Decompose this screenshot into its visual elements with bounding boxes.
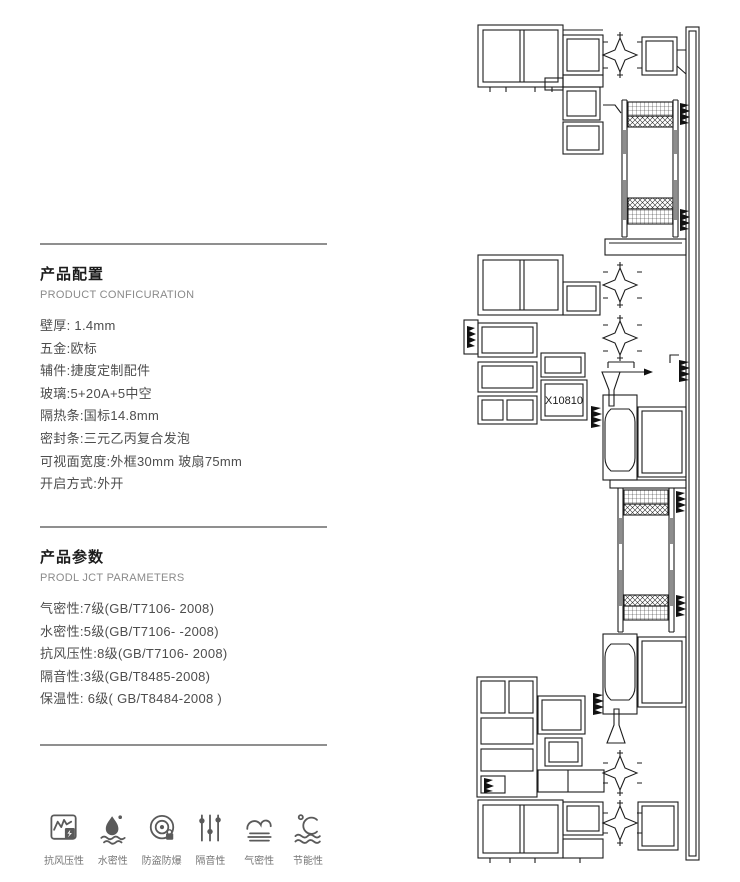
air-tightness-icon (241, 810, 277, 846)
config-list: 壁厚: 1.4mm 五金:欧标 辅件:捷度定制配件 玻璃:5+20A+5中空 隔… (40, 315, 340, 496)
performance-feature-row: 抗风压性 水密性 防盗防爆 (40, 810, 332, 867)
feature-label: 隔音性 (195, 852, 225, 867)
params-item: 保温性: 6级( GB/T8484-2008 ) (40, 688, 340, 711)
energy-saving-icon (290, 810, 326, 846)
sound-insulation-icon (192, 810, 228, 846)
product-parameters-section: 产品参数 PRODL JCT PARAMETERS 气密性:7级(GB/T710… (40, 546, 340, 711)
config-title: 产品配置 (40, 263, 340, 284)
params-title: 产品参数 (40, 546, 340, 567)
divider-bottom (40, 744, 327, 746)
labeled-profile: X10810 (541, 380, 587, 420)
drainage-arrow (644, 369, 653, 376)
head-frame (478, 25, 686, 154)
params-subtitle: PRODL JCT PARAMETERS (40, 572, 340, 584)
profile-code-label: X10810 (545, 395, 583, 407)
config-item: 壁厚: 1.4mm (40, 315, 340, 338)
config-subtitle: PRODUCT CONFICURATION (40, 289, 340, 301)
params-item: 隔音性:3级(GB/T8485-2008) (40, 666, 340, 689)
feature-label: 节能性 (293, 852, 323, 867)
water-tightness-icon (95, 810, 131, 846)
glass-unit-bottom (618, 488, 686, 632)
config-item: 玻璃:5+20A+5中空 (40, 383, 340, 406)
params-item: 抗风压性:8级(GB/T7106- 2008) (40, 643, 340, 666)
divider-middle (40, 526, 327, 528)
config-item: 密封条:三元乙丙复合发泡 (40, 428, 340, 451)
profile-cross-section-drawing: X10810 (460, 10, 740, 870)
feature-label: 防盗防爆 (142, 852, 182, 867)
config-item: 开启方式:外开 (40, 473, 340, 496)
feature-label: 气密性 (244, 852, 274, 867)
glass-unit-top (605, 100, 690, 255)
feature-air-tightness: 气密性 (235, 810, 283, 867)
divider-top (40, 243, 327, 245)
feature-sound-insulation: 隔音性 (186, 810, 234, 867)
params-list: 气密性:7级(GB/T7106- 2008) 水密性:5级(GB/T7106- … (40, 598, 340, 711)
params-item: 气密性:7级(GB/T7106- 2008) (40, 598, 340, 621)
feature-wind-pressure: 抗风压性 (40, 810, 88, 867)
jamb-profile (686, 27, 699, 860)
params-item: 水密性:5级(GB/T7106- -2008) (40, 621, 340, 644)
feature-label: 水密性 (98, 852, 128, 867)
feature-water-tightness: 水密性 (89, 810, 137, 867)
config-item: 辅件:捷度定制配件 (40, 360, 340, 383)
config-item: 隔热条:国标14.8mm (40, 405, 340, 428)
feature-anti-theft: 防盗防爆 (138, 810, 186, 867)
sill-frame (477, 634, 686, 863)
wind-pressure-icon (46, 810, 82, 846)
anti-theft-icon (144, 810, 180, 846)
product-configuration-section: 产品配置 PRODUCT CONFICURATION 壁厚: 1.4mm 五金:… (40, 263, 340, 496)
feature-label: 抗风压性 (44, 852, 84, 867)
config-item: 可视面宽度:外框30mm 玻扇75mm (40, 451, 340, 474)
config-item: 五金:欧标 (40, 338, 340, 361)
feature-energy-saving: 节能性 (284, 810, 332, 867)
mid-transom: X10810 (464, 255, 690, 488)
